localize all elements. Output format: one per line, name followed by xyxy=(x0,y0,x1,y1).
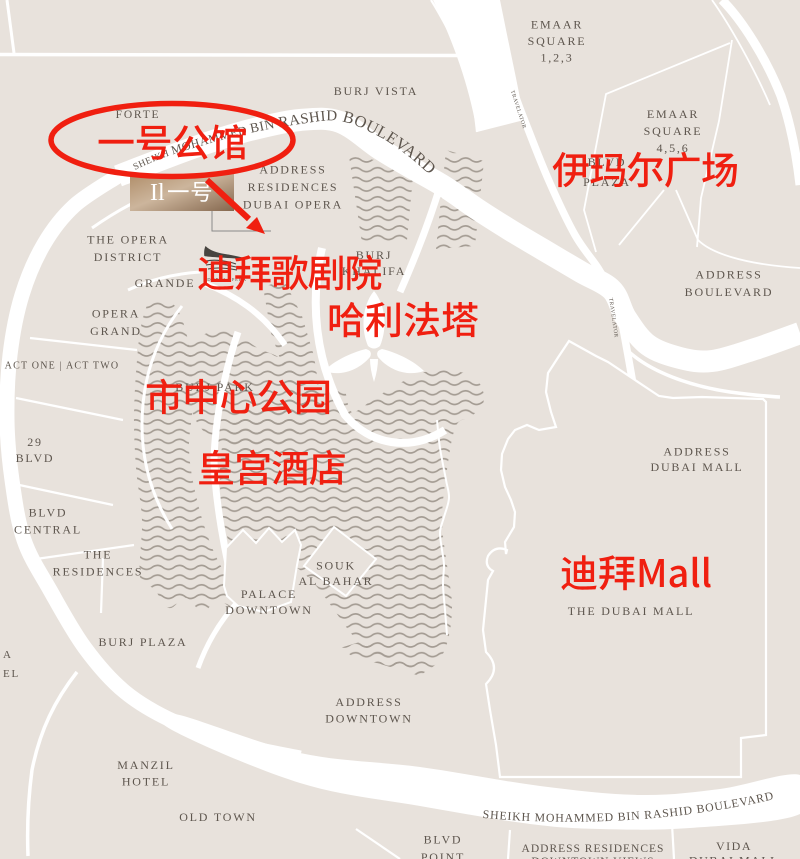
svg-text:BLVD: BLVD xyxy=(29,506,68,520)
svg-text:GRAND: GRAND xyxy=(90,324,142,338)
svg-text:DUBAI MALL: DUBAI MALL xyxy=(689,854,779,859)
svg-text:ADDRESS: ADDRESS xyxy=(695,267,762,281)
svg-text:A: A xyxy=(3,649,13,661)
svg-text:THE: THE xyxy=(84,548,113,562)
svg-text:BURJ PLAZA: BURJ PLAZA xyxy=(98,635,187,649)
svg-text:ADDRESS: ADDRESS xyxy=(663,444,730,458)
svg-text:DOWNTOWN: DOWNTOWN xyxy=(225,603,313,617)
svg-text:RESIDENCES: RESIDENCES xyxy=(53,565,144,579)
svg-text:EMAAR: EMAAR xyxy=(531,18,583,32)
svg-text:29: 29 xyxy=(27,435,43,449)
svg-text:SOUK: SOUK xyxy=(316,559,356,573)
svg-text:DUBAI OPERA: DUBAI OPERA xyxy=(243,198,343,212)
svg-text:FORTE: FORTE xyxy=(116,109,161,121)
svg-text:GRANDE: GRANDE xyxy=(135,276,196,290)
svg-text:ADDRESS RESIDENCES: ADDRESS RESIDENCES xyxy=(522,843,665,855)
svg-text:THE DUBAI MALL: THE DUBAI MALL xyxy=(568,604,695,618)
svg-text:1,2,3: 1,2,3 xyxy=(541,51,574,65)
svg-text:CENTRAL: CENTRAL xyxy=(14,523,82,537)
svg-text:ACT ONE | ACT TWO: ACT ONE | ACT TWO xyxy=(5,361,120,372)
svg-text:VIDA: VIDA xyxy=(716,839,752,853)
svg-text:THE OPERA: THE OPERA xyxy=(87,232,169,246)
svg-text:RESIDENCES: RESIDENCES xyxy=(248,180,339,194)
svg-text:AL BAHAR: AL BAHAR xyxy=(299,574,374,588)
svg-text:DISTRICT: DISTRICT xyxy=(94,250,162,264)
svg-text:OLD TOWN: OLD TOWN xyxy=(179,810,257,824)
svg-text:EMAAR: EMAAR xyxy=(647,107,699,121)
svg-text:BLVD: BLVD xyxy=(16,451,55,465)
svg-text:SQUARE: SQUARE xyxy=(644,124,703,138)
svg-text:ADDRESS: ADDRESS xyxy=(335,695,402,709)
svg-text:DOWNTOWN: DOWNTOWN xyxy=(325,712,413,726)
svg-text:BLVD: BLVD xyxy=(424,833,463,847)
svg-text:ADDRESS: ADDRESS xyxy=(259,163,326,177)
svg-text:SQUARE: SQUARE xyxy=(528,34,587,48)
svg-text:BOULEVARD: BOULEVARD xyxy=(685,285,774,299)
svg-text:BURJ VISTA: BURJ VISTA xyxy=(334,84,419,98)
svg-text:POINT: POINT xyxy=(421,850,465,859)
svg-text:DUBAI MALL: DUBAI MALL xyxy=(651,460,744,474)
svg-text:PALACE: PALACE xyxy=(241,587,297,601)
svg-text:HOTEL: HOTEL xyxy=(122,775,170,789)
svg-text:EL: EL xyxy=(3,668,20,680)
svg-text:OPERA: OPERA xyxy=(92,306,140,320)
svg-text:MANZIL: MANZIL xyxy=(117,758,174,772)
svg-text:Il: Il xyxy=(150,180,165,206)
